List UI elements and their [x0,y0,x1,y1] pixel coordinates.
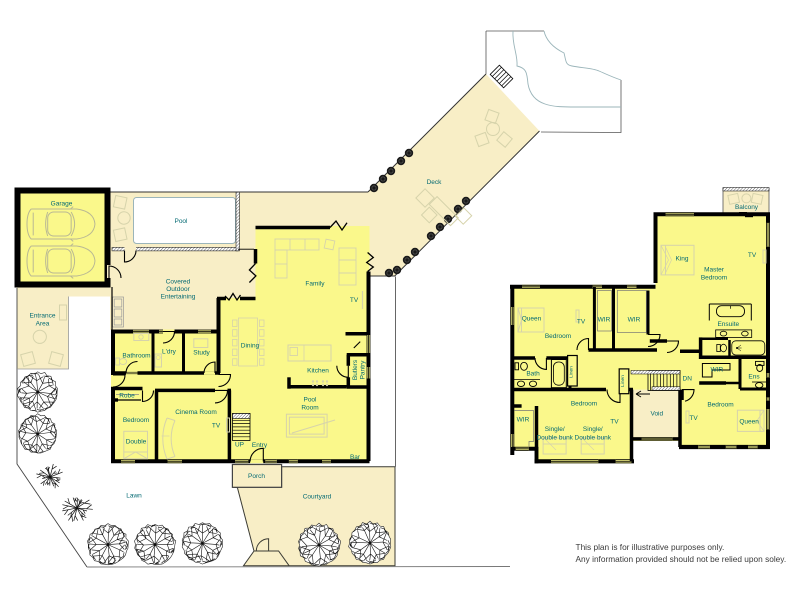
svg-text:King: King [675,256,688,263]
svg-text:UP: UP [235,442,244,449]
svg-text:Entry: Entry [252,442,268,449]
svg-text:Room: Room [301,405,318,412]
svg-text:Double bunk: Double bunk [575,435,612,442]
svg-text:TV: TV [212,423,221,430]
svg-text:Single/: Single/ [545,426,565,433]
svg-text:DN: DN [683,376,693,383]
svg-text:TV: TV [610,419,619,426]
svg-text:Kitchen: Kitchen [307,368,329,375]
svg-text:Entrance: Entrance [29,313,55,320]
svg-text:Queen: Queen [522,316,542,323]
svg-text:Queen: Queen [739,419,759,426]
svg-text:Bar: Bar [350,454,361,461]
svg-text:Family: Family [305,281,325,288]
svg-text:TV: TV [689,415,698,422]
svg-text:Bedroom: Bedroom [123,417,149,424]
svg-text:WIR: WIR [517,417,530,424]
svg-text:Lawn: Lawn [126,493,142,500]
svg-text:Bedroom: Bedroom [571,401,597,408]
svg-text:Master: Master [704,267,725,274]
svg-text:Pool: Pool [303,397,317,404]
svg-text:Pantry: Pantry [360,360,367,380]
svg-text:Bedroom: Bedroom [545,333,571,340]
svg-text:Courtyard: Courtyard [303,494,332,501]
svg-text:Bathroom: Bathroom [122,353,150,360]
svg-text:WIR: WIR [710,367,723,374]
svg-text:Balcony: Balcony [735,204,759,211]
svg-text:Porch: Porch [248,473,265,480]
svg-text:Garage: Garage [51,201,73,208]
svg-text:Entertaining: Entertaining [161,294,196,301]
svg-text:Pool: Pool [174,218,188,225]
svg-text:Butlers: Butlers [352,359,359,380]
svg-text:Void: Void [650,411,663,418]
svg-text:Area: Area [36,321,50,328]
svg-text:Robe: Robe [119,393,135,400]
svg-text:Double: Double [126,439,147,446]
svg-text:Bath: Bath [526,371,540,378]
svg-text:Single/: Single/ [583,426,603,433]
svg-text:Deck: Deck [427,179,443,186]
svg-text:Double bunk: Double bunk [536,435,573,442]
svg-text:Bedroom: Bedroom [707,402,733,409]
svg-text:Bedroom: Bedroom [701,275,727,282]
svg-text:Linen: Linen [568,366,574,378]
svg-text:TV: TV [748,252,757,259]
svg-text:This plan is for illustrative: This plan is for illustrative purposes o… [576,542,725,552]
svg-text:Cinema Room: Cinema Room [175,409,217,416]
svg-text:WIR: WIR [628,317,641,324]
svg-text:Any information provided shoul: Any information provided should not be r… [576,554,787,564]
svg-text:Dining: Dining [241,343,260,350]
svg-text:Covered: Covered [166,279,191,286]
svg-text:Study: Study [193,350,210,357]
svg-text:Ensuite: Ensuite [717,321,739,328]
svg-text:TV: TV [350,297,359,304]
svg-text:TV: TV [577,319,586,326]
svg-text:Ens: Ens [748,374,760,381]
svg-text:Linen: Linen [620,375,626,387]
svg-text:Outdoor: Outdoor [166,286,190,293]
svg-text:L'dry: L'dry [162,349,177,356]
svg-text:WIR: WIR [598,317,611,324]
